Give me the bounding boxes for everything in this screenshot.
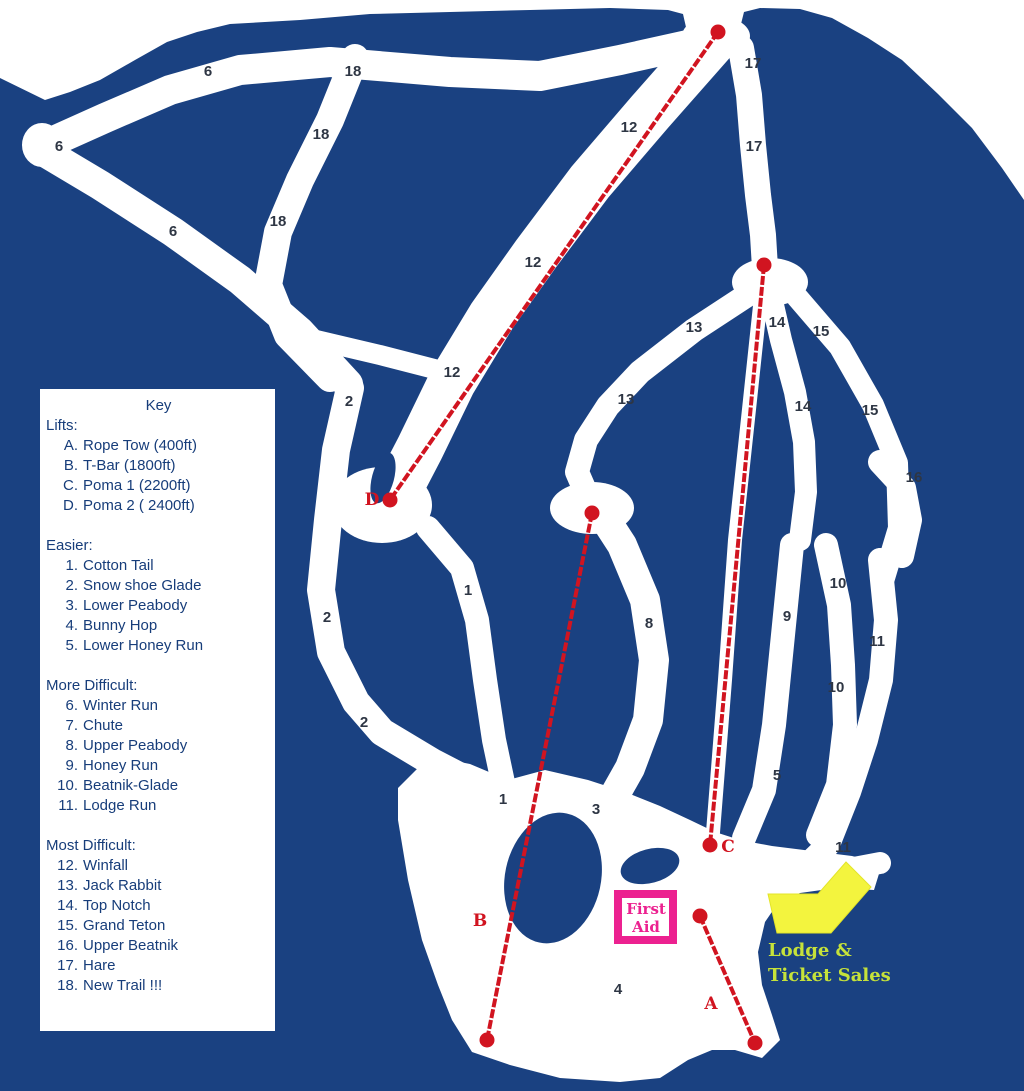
key-item-number: A. bbox=[46, 436, 78, 456]
trail-number-label: 11 bbox=[835, 839, 851, 856]
trail-number-label: 8 bbox=[645, 615, 653, 632]
key-item-label: New Trail !!! bbox=[83, 976, 162, 996]
key-item-label: Lower Peabody bbox=[83, 596, 187, 616]
key-item-number: 2. bbox=[46, 576, 78, 596]
trail-number-label: 13 bbox=[618, 391, 635, 408]
key-item: 11.Lodge Run bbox=[46, 796, 271, 816]
trail-number-label: 10 bbox=[828, 679, 845, 696]
key-item-label: Lower Honey Run bbox=[83, 636, 203, 656]
key-item: 12.Winfall bbox=[46, 856, 271, 876]
trail-number-label: 6 bbox=[55, 138, 63, 155]
trail-number-label: 14 bbox=[769, 314, 786, 331]
key-item: 2.Snow shoe Glade bbox=[46, 576, 271, 596]
trail-number-label: 2 bbox=[345, 393, 353, 410]
key-item: 4.Bunny Hop bbox=[46, 616, 271, 636]
key-item-number: 14. bbox=[46, 896, 78, 916]
lift-A-bottom-station-dot bbox=[748, 1036, 763, 1051]
trail-number-label: 3 bbox=[592, 801, 600, 818]
key-item-label: Grand Teton bbox=[83, 916, 165, 936]
trail-number-label: 15 bbox=[813, 323, 830, 340]
trail-number-label: 12 bbox=[444, 364, 461, 381]
key-item-number: B. bbox=[46, 456, 78, 476]
key-item-number: 9. bbox=[46, 756, 78, 776]
trail-number-label: 1 bbox=[464, 582, 472, 599]
lift-letter-D: D bbox=[365, 490, 380, 510]
key-item: 7.Chute bbox=[46, 716, 271, 736]
lift-C-top-station-dot bbox=[757, 258, 772, 273]
key-item-number: 10. bbox=[46, 776, 78, 796]
key-item-label: Cotton Tail bbox=[83, 556, 154, 576]
key-item: 17.Hare bbox=[46, 956, 271, 976]
trail-number-label: 4 bbox=[614, 981, 623, 998]
first-aid-marker: FirstAid bbox=[614, 890, 677, 944]
key-item: B.T-Bar (1800ft) bbox=[46, 456, 271, 476]
key-item-number: C. bbox=[46, 476, 78, 496]
trail-number-label: 18 bbox=[270, 213, 287, 230]
trail-number-label: 6 bbox=[169, 223, 177, 240]
trail-number-label: 2 bbox=[323, 609, 331, 626]
key-item: 3.Lower Peabody bbox=[46, 596, 271, 616]
key-item-number: 3. bbox=[46, 596, 78, 616]
key-item: 13.Jack Rabbit bbox=[46, 876, 271, 896]
key-item-label: Upper Beatnik bbox=[83, 936, 178, 956]
key-item-label: Upper Peabody bbox=[83, 736, 187, 756]
trail-number-label: 18 bbox=[313, 126, 330, 143]
key-item: 1.Cotton Tail bbox=[46, 556, 271, 576]
key-item-label: Top Notch bbox=[83, 896, 151, 916]
lift-C-bottom-station-dot bbox=[703, 838, 718, 853]
key-item-number: 18. bbox=[46, 976, 78, 996]
key-item-label: Honey Run bbox=[83, 756, 158, 776]
lift-letter-B: B bbox=[473, 911, 487, 931]
key-item-number: 4. bbox=[46, 616, 78, 636]
key-item-number: 5. bbox=[46, 636, 78, 656]
key-section: Lifts:A.Rope Tow (400ft)B.T-Bar (1800ft)… bbox=[46, 416, 271, 516]
key-item-number: 7. bbox=[46, 716, 78, 736]
key-section-heading: Lifts: bbox=[46, 416, 271, 436]
key-item-label: Jack Rabbit bbox=[83, 876, 161, 896]
key-item-number: D. bbox=[46, 496, 78, 516]
key-item: 8.Upper Peabody bbox=[46, 736, 271, 756]
trail-number-label: 6 bbox=[204, 63, 212, 80]
key-item: 10.Beatnik-Glade bbox=[46, 776, 271, 796]
key-item-number: 16. bbox=[46, 936, 78, 956]
trail-number-label: 16 bbox=[906, 469, 923, 486]
trail-number-label: 1 bbox=[499, 791, 507, 808]
trail-number-label: 15 bbox=[862, 402, 879, 419]
key-section-heading: Easier: bbox=[46, 536, 271, 556]
key-item-label: Winter Run bbox=[83, 696, 158, 716]
key-sections: Lifts:A.Rope Tow (400ft)B.T-Bar (1800ft)… bbox=[46, 416, 271, 996]
lift-D-top-station-dot bbox=[711, 25, 726, 40]
trail-number-label: 17 bbox=[746, 138, 763, 155]
key-item-number: 11. bbox=[46, 796, 78, 816]
trail-number-label: 14 bbox=[795, 398, 812, 415]
key-item: 16.Upper Beatnik bbox=[46, 936, 271, 956]
key-item-label: Beatnik-Glade bbox=[83, 776, 178, 796]
key-item-label: Rope Tow (400ft) bbox=[83, 436, 197, 456]
key-item: A.Rope Tow (400ft) bbox=[46, 436, 271, 456]
key-section: Most Difficult:12.Winfall13.Jack Rabbit1… bbox=[46, 836, 271, 996]
key-title: Key bbox=[46, 396, 271, 416]
key-section-heading: Most Difficult: bbox=[46, 836, 271, 856]
key-item-label: Lodge Run bbox=[83, 796, 156, 816]
key-item-number: 15. bbox=[46, 916, 78, 936]
key-item-number: 17. bbox=[46, 956, 78, 976]
key-item: 18.New Trail !!! bbox=[46, 976, 271, 996]
lift-B-bottom-station-dot bbox=[480, 1033, 495, 1048]
key-item: 15.Grand Teton bbox=[46, 916, 271, 936]
key-item-label: Poma 2 ( 2400ft) bbox=[83, 496, 195, 516]
key-item: 14.Top Notch bbox=[46, 896, 271, 916]
key-item: 6.Winter Run bbox=[46, 696, 271, 716]
key-item-number: 13. bbox=[46, 876, 78, 896]
key-section: Easier:1.Cotton Tail2.Snow shoe Glade3.L… bbox=[46, 536, 271, 656]
key-section-heading: More Difficult: bbox=[46, 676, 271, 696]
lift-B-top-station-dot bbox=[585, 506, 600, 521]
trail-number-label: 13 bbox=[686, 319, 703, 336]
key-item-label: Bunny Hop bbox=[83, 616, 157, 636]
trail-number-label: 2 bbox=[360, 714, 368, 731]
key-section: More Difficult:6.Winter Run7.Chute8.Uppe… bbox=[46, 676, 271, 816]
lift-letter-A: A bbox=[703, 994, 718, 1014]
key-item-label: Chute bbox=[83, 716, 123, 736]
key-item: C.Poma 1 (2200ft) bbox=[46, 476, 271, 496]
map-key: Key Lifts:A.Rope Tow (400ft)B.T-Bar (180… bbox=[36, 385, 279, 1035]
trail-number-label: 9 bbox=[783, 608, 791, 625]
trail-number-label: 10 bbox=[830, 575, 847, 592]
key-item-number: 1. bbox=[46, 556, 78, 576]
trail-number-label: 5 bbox=[773, 767, 781, 784]
ski-trail-map: 6661818181212121717131314141515162221189… bbox=[0, 0, 1024, 1091]
key-item-number: 8. bbox=[46, 736, 78, 756]
lift-D-bottom-station-dot bbox=[383, 493, 398, 508]
key-item-label: Poma 1 (2200ft) bbox=[83, 476, 191, 496]
lift-letter-C: C bbox=[721, 837, 735, 857]
key-item-label: T-Bar (1800ft) bbox=[83, 456, 176, 476]
trail-number-label: 18 bbox=[345, 63, 362, 80]
key-item: 5.Lower Honey Run bbox=[46, 636, 271, 656]
key-item: 9.Honey Run bbox=[46, 756, 271, 776]
key-item-number: 6. bbox=[46, 696, 78, 716]
lift-A-top-station-dot bbox=[693, 909, 708, 924]
key-item-label: Winfall bbox=[83, 856, 128, 876]
trail-number-label: 12 bbox=[525, 254, 542, 271]
key-item-number: 12. bbox=[46, 856, 78, 876]
trail-number-label: 11 bbox=[869, 633, 885, 650]
trail-number-label: 12 bbox=[621, 119, 638, 136]
trail-number-label: 17 bbox=[745, 55, 762, 72]
key-item: D.Poma 2 ( 2400ft) bbox=[46, 496, 271, 516]
key-item-label: Snow shoe Glade bbox=[83, 576, 201, 596]
key-item-label: Hare bbox=[83, 956, 116, 976]
